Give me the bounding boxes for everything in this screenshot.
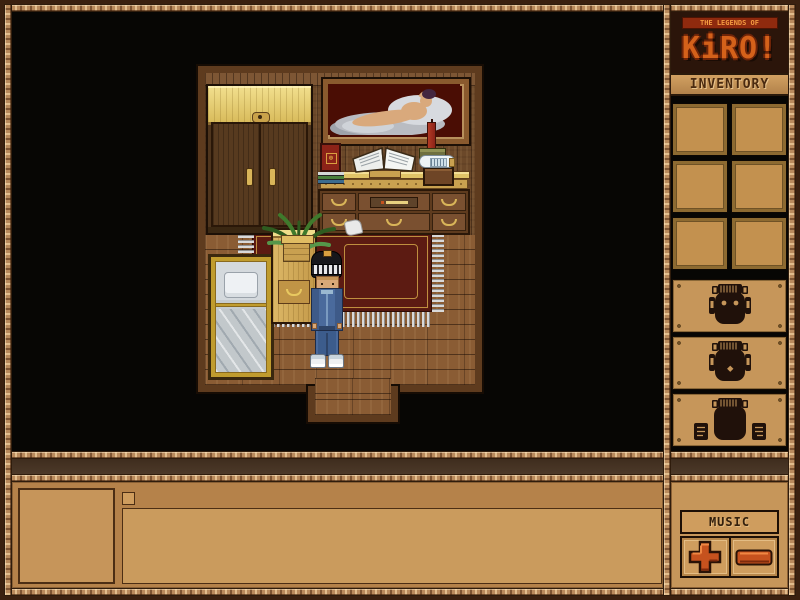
music-volume-down-button[interactable] — [731, 538, 778, 576]
logo-title: KiRO! — [671, 29, 788, 69]
bed[interactable] — [208, 254, 274, 380]
inventory-slot[interactable] — [673, 218, 727, 269]
player-shoe-right — [328, 354, 344, 368]
alcove-floor-join — [315, 378, 391, 394]
painting-canvas — [328, 84, 460, 135]
rope-border-divider — [663, 4, 671, 596]
small-chest[interactable] — [423, 167, 454, 186]
nightstand-handle — [286, 289, 302, 296]
wardrobe-handle-right — [269, 168, 276, 186]
nightstand-drawer — [278, 280, 310, 304]
dialogue-corner-tab — [122, 492, 135, 505]
rope-border — [4, 588, 796, 596]
player-jacket — [311, 288, 343, 331]
helmet-knob — [323, 250, 332, 257]
emote-button-fists[interactable] — [673, 394, 786, 446]
open-book[interactable] — [349, 144, 419, 174]
book-stack[interactable] — [318, 172, 344, 184]
rope-border — [4, 4, 12, 596]
music-label: MUSIC — [680, 510, 779, 534]
bed-head — [216, 262, 266, 300]
bottle[interactable] — [419, 155, 455, 168]
drawer-handle — [331, 199, 347, 206]
inventory-slot[interactable] — [673, 104, 727, 155]
player-hand-left — [312, 323, 317, 329]
game-window: ⊗ — [0, 0, 800, 600]
minus-icon — [735, 549, 773, 566]
rug-fringe-right — [432, 234, 444, 312]
pillow — [224, 272, 258, 298]
player-shoe-left — [310, 354, 326, 368]
wardrobe-handle-left — [246, 168, 253, 186]
drawer[interactable] — [432, 213, 466, 231]
drawer-slider-handle — [370, 197, 418, 208]
emote-button-eyes-closed[interactable] — [673, 337, 786, 389]
music-panel: MUSIC — [671, 482, 788, 588]
rope-border — [788, 4, 796, 596]
plant-pot — [283, 238, 310, 262]
inventory-header: INVENTORY — [671, 73, 788, 96]
drawer-handle — [441, 219, 457, 226]
kiro-face-icon — [692, 397, 768, 443]
music-volume-up-button[interactable] — [682, 538, 729, 576]
inventory-slot[interactable] — [732, 218, 786, 269]
candle[interactable] — [427, 122, 436, 150]
dialogue-portrait-box — [18, 488, 115, 584]
bed-blanket — [216, 309, 266, 372]
red-book[interactable]: ⊗ — [320, 143, 341, 172]
bed-frame-bar — [215, 303, 267, 307]
dialogue-text-box — [122, 508, 662, 584]
rope-border — [4, 4, 796, 12]
painting-reclining-figure[interactable] — [323, 79, 469, 144]
frame-strip — [4, 459, 796, 474]
bottle-cork — [449, 158, 455, 167]
kiro-face-icon — [702, 341, 758, 385]
kiro-face-icon — [702, 284, 758, 328]
jacket-zip — [326, 294, 328, 326]
game-logo: THE LEGENDS OF KiRO! — [671, 12, 788, 73]
player-pants — [315, 330, 339, 356]
inventory-slot[interactable] — [732, 161, 786, 212]
plus-icon — [688, 540, 722, 574]
player-hand-right — [337, 323, 342, 329]
helmet-striped-band — [311, 264, 342, 275]
drawer-handle — [386, 219, 402, 226]
player-helmet — [311, 251, 342, 278]
inventory-grid — [673, 104, 786, 269]
logo-tagline: THE LEGENDS OF — [682, 17, 778, 29]
inventory-slot[interactable] — [673, 161, 727, 212]
drawer[interactable] — [358, 213, 430, 231]
game-viewport[interactable]: ⊗ — [12, 12, 663, 451]
player-character[interactable] — [309, 251, 345, 369]
dialogue-panel — [12, 482, 663, 588]
bottle-label — [430, 158, 447, 167]
drawer[interactable] — [358, 193, 430, 211]
drawer-handle — [441, 199, 457, 206]
rope-border — [4, 451, 796, 459]
drawer[interactable] — [432, 193, 466, 211]
music-controls — [680, 536, 779, 578]
sidebar: THE LEGENDS OF KiRO! INVENTORY — [671, 12, 788, 451]
rope-border — [4, 474, 796, 482]
emote-button-eyes-open[interactable] — [673, 280, 786, 332]
inventory-slot[interactable] — [732, 104, 786, 155]
